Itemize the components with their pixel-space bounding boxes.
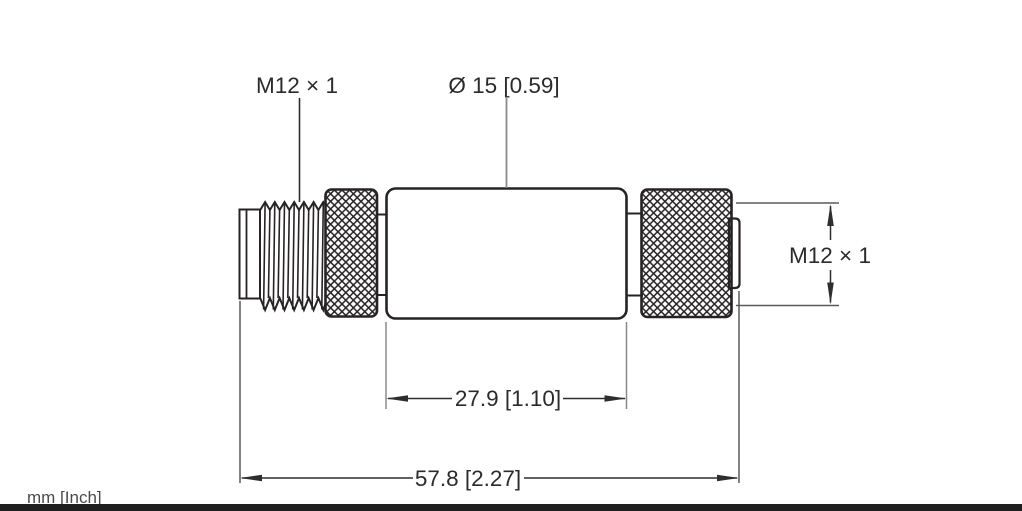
knurled-nut-right: [642, 190, 732, 318]
thread-right-label: M12 × 1: [789, 243, 871, 268]
arrow-up-icon: [827, 204, 834, 226]
knurled-nut-left: [326, 190, 378, 317]
technical-drawing-page: M12 × 1 Ø 15 [0.59] M12 × 1 27.9 [1.10] …: [0, 0, 1022, 511]
overall-length-label: 57.8 [2.27]: [415, 466, 521, 491]
arrow-left-icon: [386, 395, 408, 402]
footer-bar: [0, 504, 1022, 511]
connector-body-group: [240, 189, 740, 319]
body-length-label: 27.9 [1.10]: [455, 386, 561, 411]
connector-tip-left: [240, 210, 261, 299]
arrow-down-icon: [827, 283, 834, 305]
connector-technical-drawing: M12 × 1 Ø 15 [0.59] M12 × 1 27.9 [1.10] …: [0, 0, 1022, 511]
sensor-body: [387, 189, 627, 319]
body-diameter-label: Ø 15 [0.59]: [448, 73, 559, 98]
arrow-left-icon: [240, 475, 262, 482]
arrow-right-icon: [717, 475, 739, 482]
thread-left-label: M12 × 1: [256, 73, 338, 98]
thread-section-left: [260, 202, 325, 310]
arrow-right-icon: [605, 395, 627, 402]
